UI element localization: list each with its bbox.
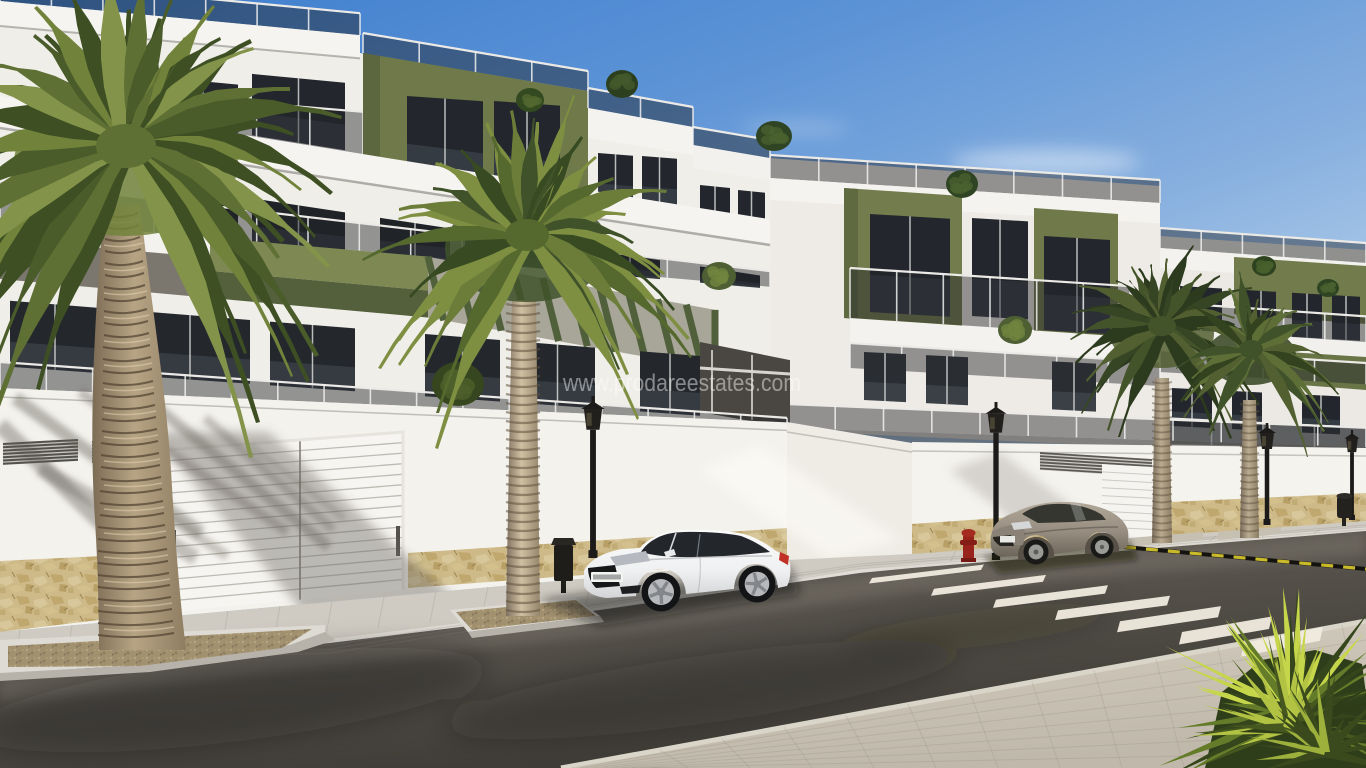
svg-text:www.prodareestates.com: www.prodareestates.com [562, 370, 801, 397]
